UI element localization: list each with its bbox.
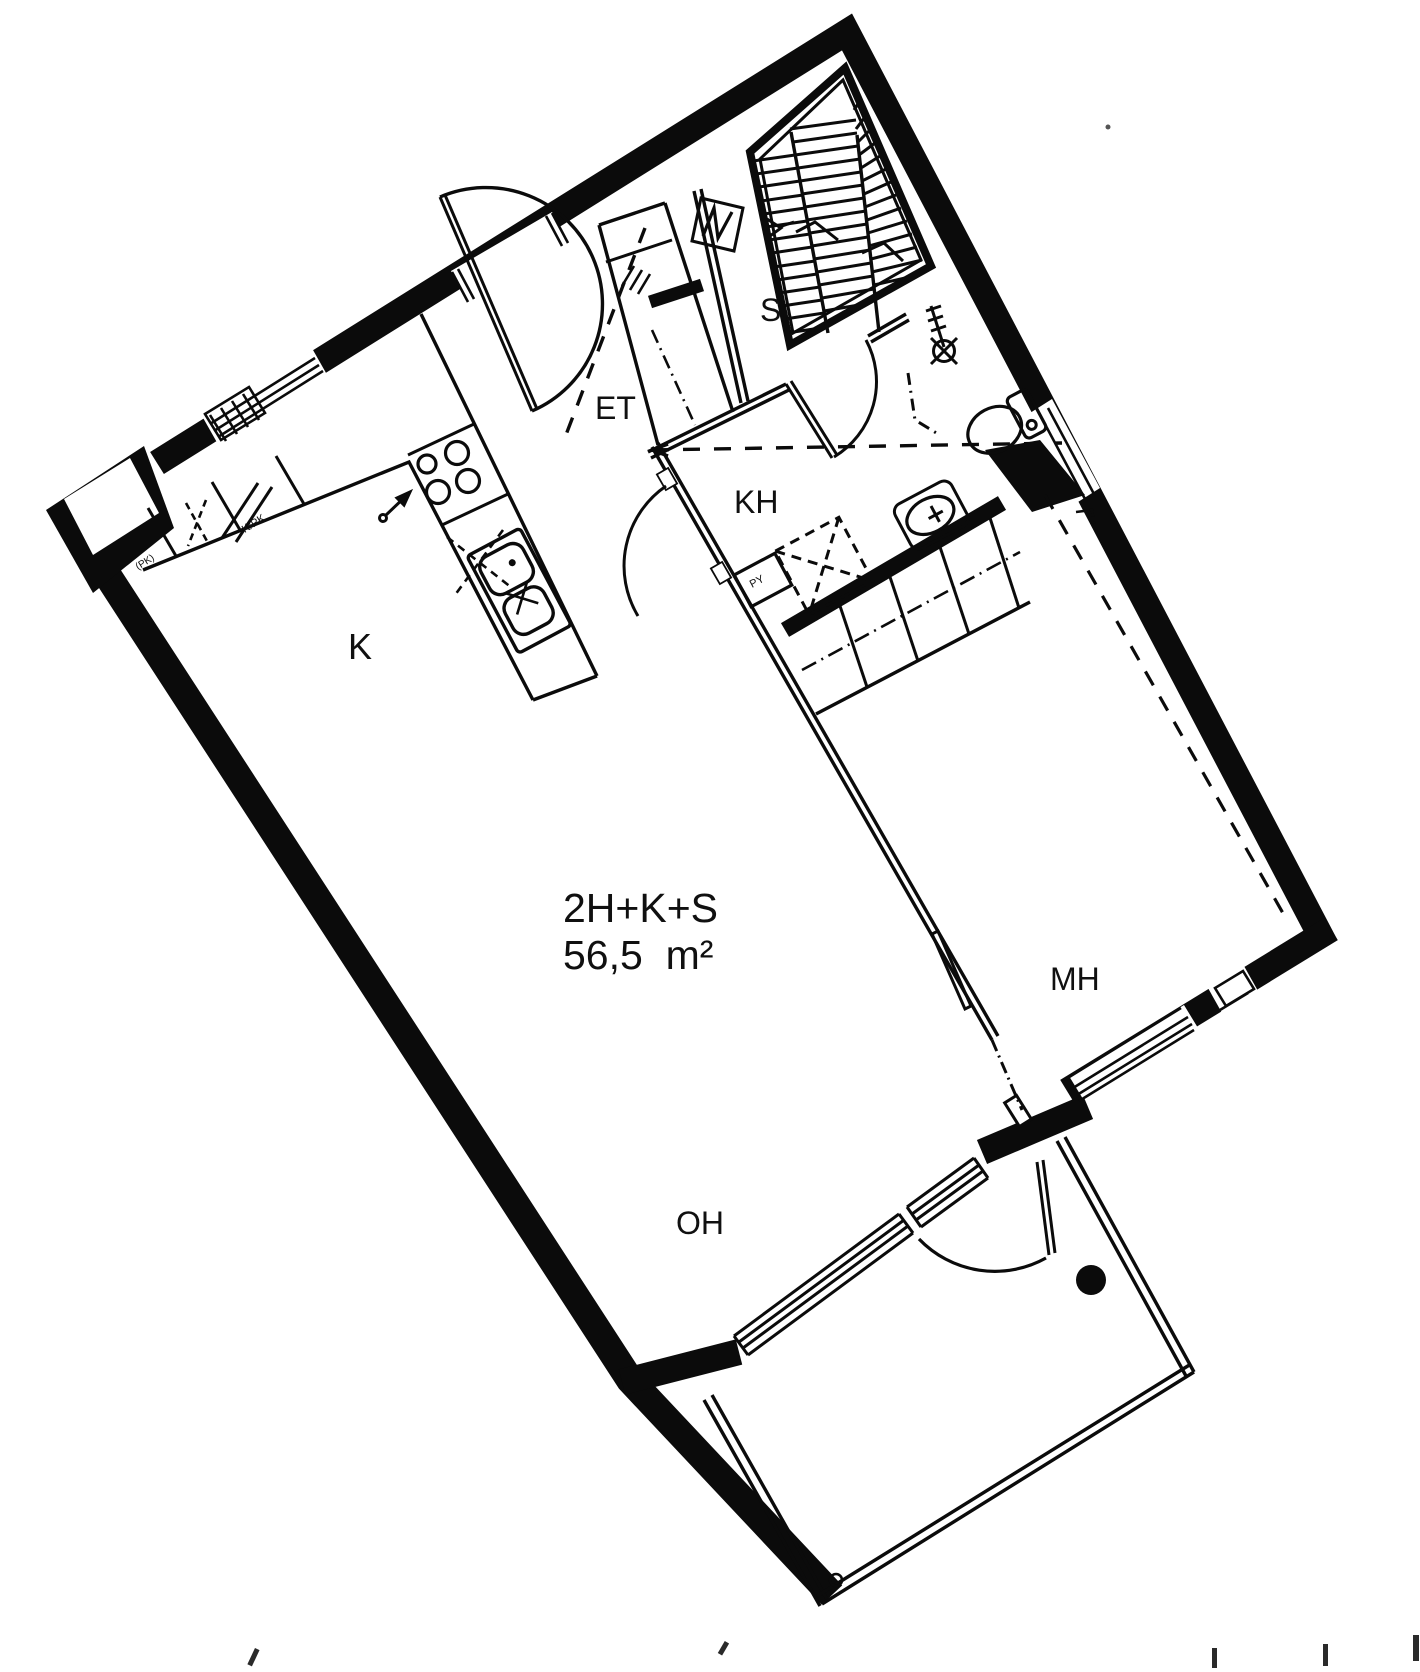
svg-text:MH: MH <box>1050 961 1100 997</box>
svg-text:KH: KH <box>734 484 778 520</box>
svg-text:K: K <box>348 626 372 667</box>
svg-text:2H+K+S: 2H+K+S <box>563 885 718 931</box>
svg-text:OH: OH <box>676 1205 724 1241</box>
svg-text:56,5 m²: 56,5 m² <box>563 932 713 978</box>
svg-text:S: S <box>760 292 781 328</box>
svg-text:ET: ET <box>595 390 636 426</box>
